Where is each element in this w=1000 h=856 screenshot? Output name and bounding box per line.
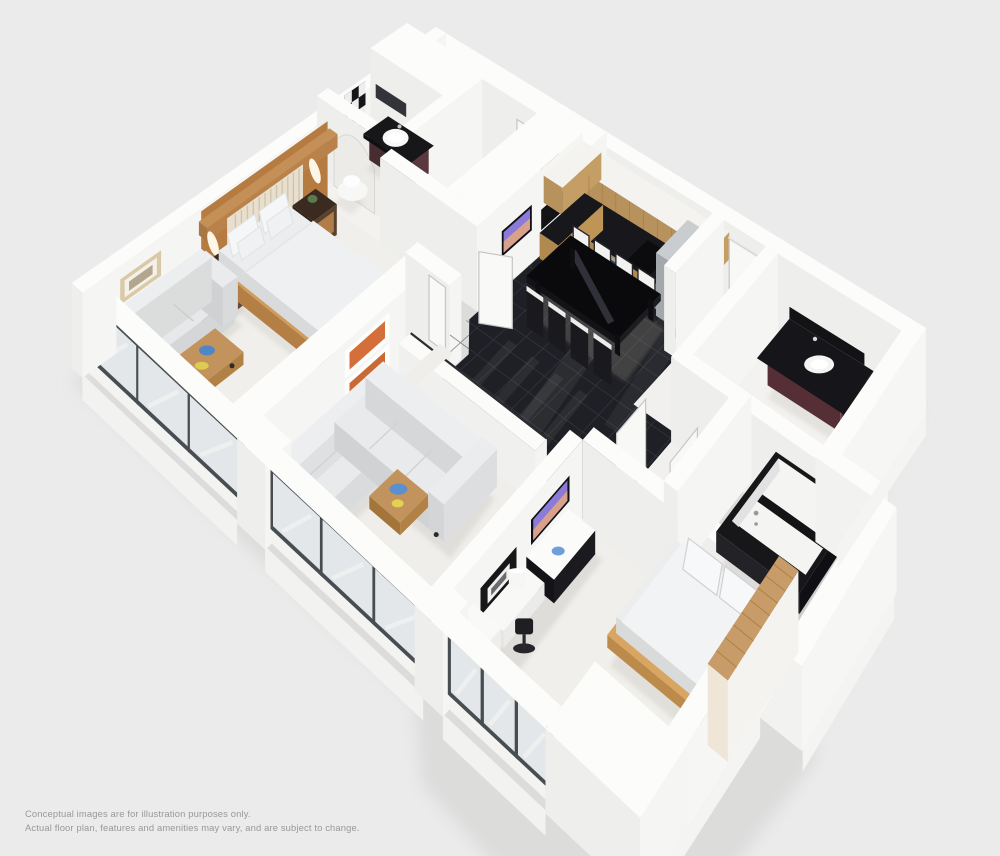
svg-text:Actual floor plan, features an: Actual floor plan, features and amenitie…	[25, 822, 360, 833]
svg-text:Conceptual images are for illu: Conceptual images are for illustration p…	[25, 808, 251, 819]
